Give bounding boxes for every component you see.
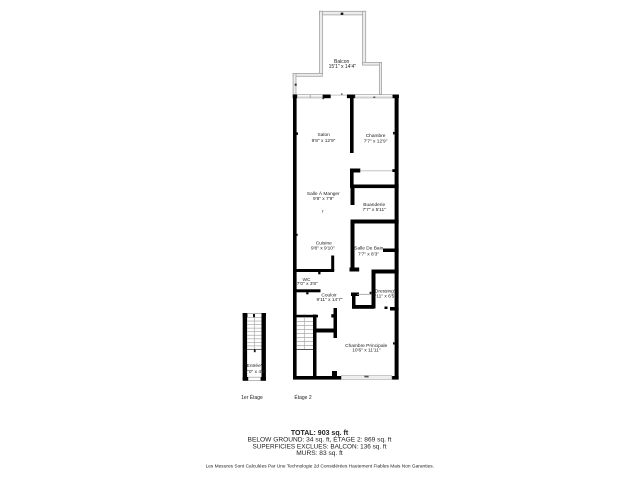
svg-text:Salle De Bain: Salle De Bain	[354, 245, 383, 251]
svg-text:MURS: 83 sq. ft: MURS: 83 sq. ft	[296, 450, 343, 457]
svg-text:1er Étage: 1er Étage	[241, 394, 263, 401]
svg-text:7'7" x 8'3": 7'7" x 8'3"	[358, 252, 379, 258]
svg-text:9'11" x 14'7": 9'11" x 14'7"	[317, 297, 343, 303]
svg-text:9'8" x 7'9": 9'8" x 7'9"	[313, 196, 334, 202]
svg-text:10'6" x 11'11": 10'6" x 11'11"	[352, 348, 381, 354]
svg-text:7'11" x 6'5": 7'11" x 6'5"	[373, 294, 397, 300]
svg-text:9'8" x 9'10": 9'8" x 9'10"	[311, 245, 335, 251]
svg-text:7'7" x 12'9": 7'7" x 12'9"	[364, 138, 388, 144]
svg-text:"Entrée": "Entrée"	[245, 363, 263, 369]
svg-text:Salon: Salon	[318, 132, 331, 138]
svg-text:7'7" x 5'11": 7'7" x 5'11"	[363, 207, 387, 213]
svg-text:Cuisine: Cuisine	[316, 240, 332, 246]
svg-text:7'0" x 3'8": 7'0" x 3'8"	[297, 281, 318, 287]
svg-text:7'0" x 4'8": 7'0" x 4'8"	[245, 369, 266, 375]
svg-text:BELOW GROUND: 34 sq. ft, ÉTAGE: BELOW GROUND: 34 sq. ft, ÉTAGE 2: 869 sq…	[248, 435, 392, 444]
svg-text:9'8" x 12'9": 9'8" x 12'9"	[312, 138, 336, 144]
svg-text:Étage 2: Étage 2	[294, 394, 311, 401]
svg-text:Chambre: Chambre	[366, 133, 386, 139]
svg-text:15'1" x 14'4": 15'1" x 14'4"	[329, 64, 357, 70]
svg-text:Les Mesures Sont Calculées Par: Les Mesures Sont Calculées Par Une Techn…	[206, 463, 434, 469]
